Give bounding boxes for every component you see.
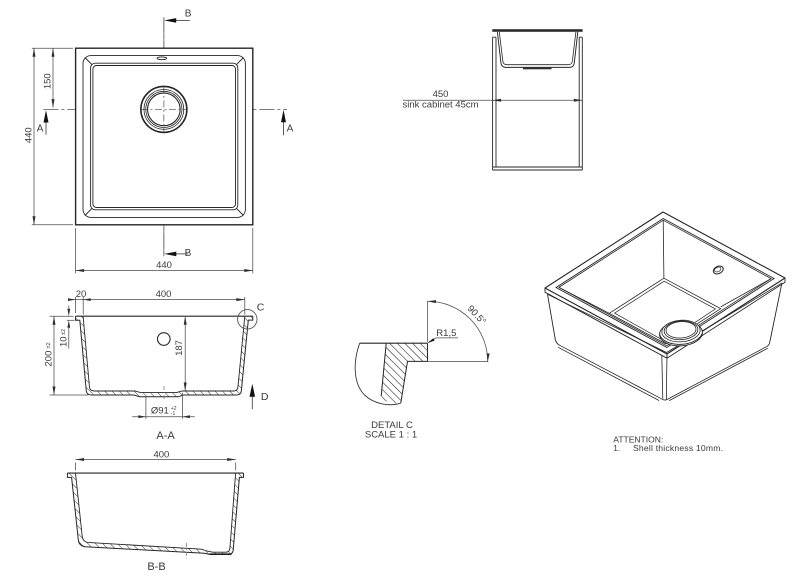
svg-text:B: B	[185, 9, 192, 20]
svg-text:10: 10	[58, 336, 69, 347]
svg-text:±2: ±2	[61, 329, 67, 335]
svg-text:B-B: B-B	[147, 561, 165, 573]
svg-text:187: 187	[174, 340, 185, 356]
svg-text:SCALE 1 : 1: SCALE 1 : 1	[365, 430, 417, 441]
svg-text:440: 440	[24, 127, 35, 143]
svg-text:A: A	[37, 123, 44, 134]
svg-text:sink cabinet 45cm: sink cabinet 45cm	[403, 100, 479, 111]
svg-text:Shell thickness 10mm.: Shell thickness 10mm.	[633, 443, 723, 453]
svg-text:150: 150	[43, 73, 54, 89]
svg-text:440: 440	[156, 260, 172, 271]
svg-text:A: A	[287, 123, 294, 134]
svg-text:400: 400	[156, 289, 172, 300]
svg-text:-1: -1	[171, 411, 176, 417]
svg-text:C: C	[257, 302, 265, 314]
svg-text:20: 20	[76, 289, 87, 300]
svg-text:Ø91: Ø91	[151, 406, 169, 417]
svg-text:A-A: A-A	[156, 430, 175, 442]
svg-text:D: D	[261, 391, 269, 403]
svg-text:200: 200	[44, 351, 55, 367]
svg-text:1.: 1.	[613, 443, 620, 453]
svg-text:400: 400	[153, 449, 169, 460]
svg-text:B: B	[185, 248, 192, 259]
svg-text:R1,5: R1,5	[436, 328, 456, 339]
svg-text:±2: ±2	[46, 342, 52, 348]
